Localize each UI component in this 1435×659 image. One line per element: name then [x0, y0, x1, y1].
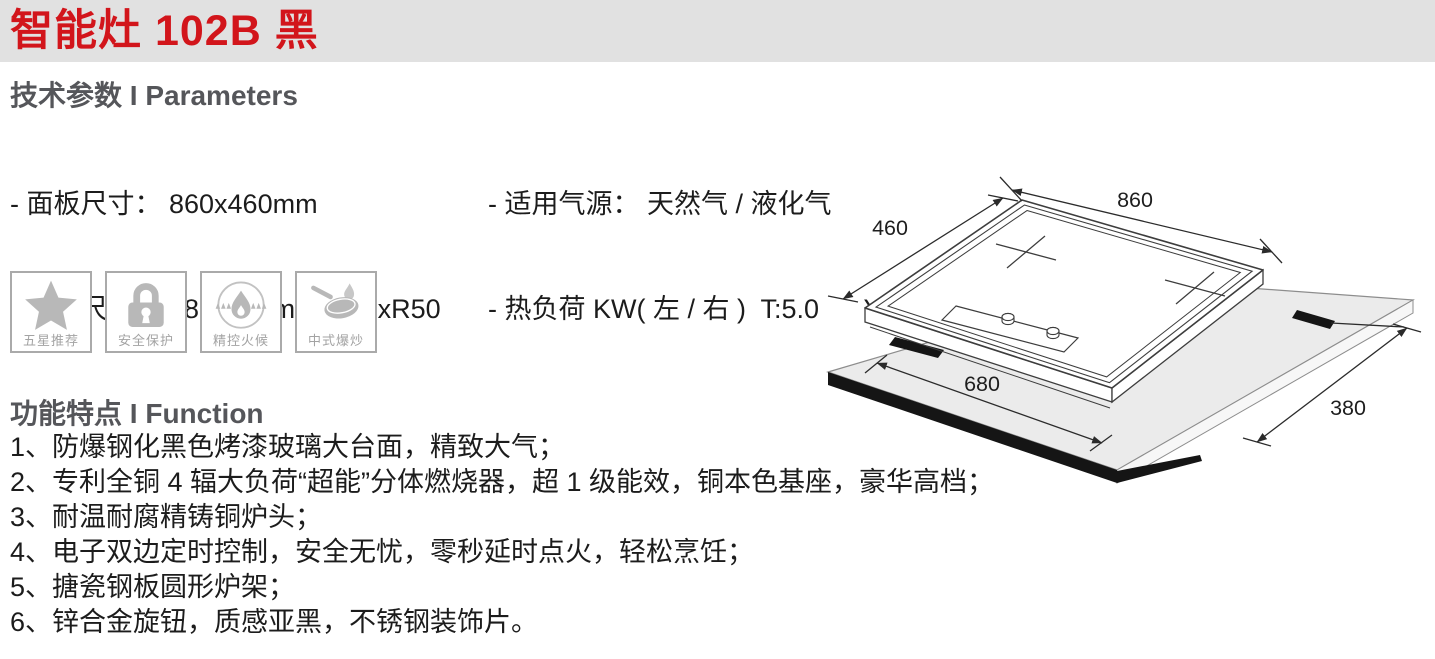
parameters-left-column: - 面板尺寸： 860x460mm - 开孔尺寸： 680x380mm 4xR5… [10, 117, 441, 397]
page-title: 智能灶 102B 黑 [0, 0, 1435, 55]
lock-icon [119, 277, 173, 333]
technical-drawing: 680 [810, 165, 1435, 495]
section-heading-parameters: 技术参数 I Parameters [10, 74, 298, 114]
function-item: 3、耐温耐腐精铸铜炉头； [10, 500, 994, 535]
dim-label-panel-width: 860 [1117, 188, 1153, 212]
dim-label-cutout-depth: 380 [1330, 396, 1366, 420]
badge-stir-fry: 中式爆炒 [295, 271, 377, 353]
knob [1002, 313, 1014, 324]
badges-row: 五星推荐 安全保护 精控火候 [10, 271, 377, 353]
badge-flame-control: 精控火候 [200, 271, 282, 353]
function-item: 4、电子双边定时控制，安全无忧，零秒延时点火，轻松烹饪； [10, 535, 994, 570]
function-item: 5、搪瓷钢板圆形炉架； [10, 570, 994, 605]
badge-safety: 安全保护 [105, 271, 187, 353]
function-item: 6、锌合金旋钮，质感亚黑，不锈钢装饰片。 [10, 605, 994, 640]
section-heading-function: 功能特点 I Function [10, 392, 264, 432]
spec-sheet: 智能灶 102B 黑 技术参数 I Parameters - 面板尺寸： 860… [0, 0, 1435, 659]
knob [1047, 327, 1059, 338]
wok-icon [307, 277, 365, 335]
star-icon [22, 277, 80, 335]
param-row-panel-size: - 面板尺寸： 860x460mm [10, 187, 441, 222]
title-bar: 智能灶 102B 黑 [0, 0, 1435, 62]
badge-label: 精控火候 [202, 330, 280, 349]
dim-label-cutout-width: 680 [964, 372, 1000, 396]
badge-label: 安全保护 [107, 330, 185, 349]
flame-icon [212, 277, 270, 335]
badge-label: 中式爆炒 [297, 330, 375, 349]
badge-five-star: 五星推荐 [10, 271, 92, 353]
badge-label: 五星推荐 [12, 330, 90, 349]
dim-label-panel-depth: 460 [872, 216, 908, 240]
